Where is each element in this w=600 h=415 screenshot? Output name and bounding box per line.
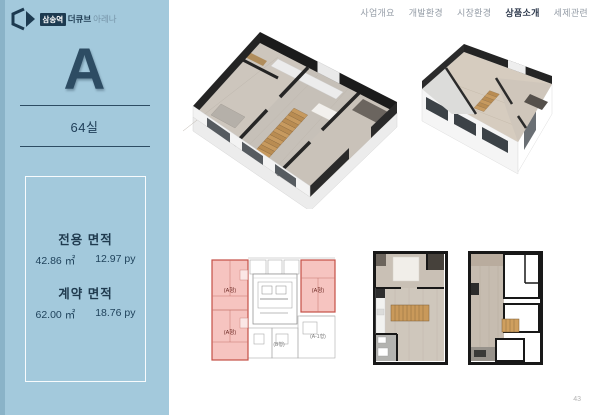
isometric-render-lower-floor (183, 27, 408, 209)
logo: 삼송역 더큐브 아레나 (10, 7, 117, 31)
top-nav: 사업개요 개발환경 시장환경 상품소개 세제관련 (360, 6, 588, 19)
nav-item-market-env[interactable]: 시장환경 (457, 6, 491, 19)
highlighted-a-unit-right (301, 260, 335, 312)
nav-item-tax-info[interactable]: 세제관련 (554, 6, 588, 19)
logo-badge: 삼송역 (40, 13, 66, 26)
label-b: (B형) (273, 341, 285, 348)
divider-line-top (20, 105, 150, 106)
contract-area-py: 18.76 py (95, 307, 135, 322)
exclusive-area-values: 42.86 ㎡ 12.97 py (26, 253, 145, 268)
nav-item-product-intro[interactable]: 상품소개 (505, 6, 539, 19)
area-info-box: 전용 면적 42.86 ㎡ 12.97 py 계약 면적 62.00 ㎡ 18.… (25, 176, 146, 382)
contract-area-m2: 62.00 ㎡ (36, 307, 76, 322)
sidebar: 삼송역 더큐브 아레나 A 64실 전용 면적 42.86 ㎡ 12.97 py… (0, 0, 169, 415)
logo-brand: 더큐브 (68, 13, 91, 25)
label-a1: (A-1형) (310, 333, 326, 340)
highlighted-a-units-left (212, 260, 248, 360)
plan2-stair (502, 319, 519, 332)
contract-area-values: 62.00 ㎡ 18.76 py (26, 307, 145, 322)
unit-type-letter: A (0, 36, 169, 103)
cube-logo-icon (10, 7, 36, 31)
nav-item-business-overview[interactable]: 사업개요 (360, 6, 394, 19)
exclusive-area-label: 전용 면적 (26, 229, 145, 248)
plan-render-upper-floor (466, 249, 545, 367)
exclusive-area-py: 12.97 py (95, 253, 135, 268)
room-count: 64실 (0, 117, 169, 136)
nav-item-development-env[interactable]: 개발환경 (409, 6, 443, 19)
logo-suffix: 아레나 (93, 13, 116, 25)
isometric-render-upper-floor (412, 42, 582, 187)
label-a-right: (A형) (312, 287, 325, 294)
contract-area-label: 계약 면적 (26, 283, 145, 302)
floor-plate-key-plan: (A형) (A형) (A형) (B형) (A-1형) (206, 252, 341, 370)
elevator-core (253, 274, 297, 324)
label-a-left-bottom: (A형) (224, 329, 237, 336)
plan-render-lower-floor (371, 249, 450, 367)
page-number: 43 (573, 396, 581, 403)
plan1-stair (391, 305, 429, 321)
exclusive-area-m2: 42.86 ㎡ (36, 253, 76, 268)
divider-line-bottom (20, 146, 150, 147)
label-a-left-top: (A형) (224, 287, 237, 294)
logo-text: 삼송역 더큐브 아레나 (40, 13, 117, 26)
